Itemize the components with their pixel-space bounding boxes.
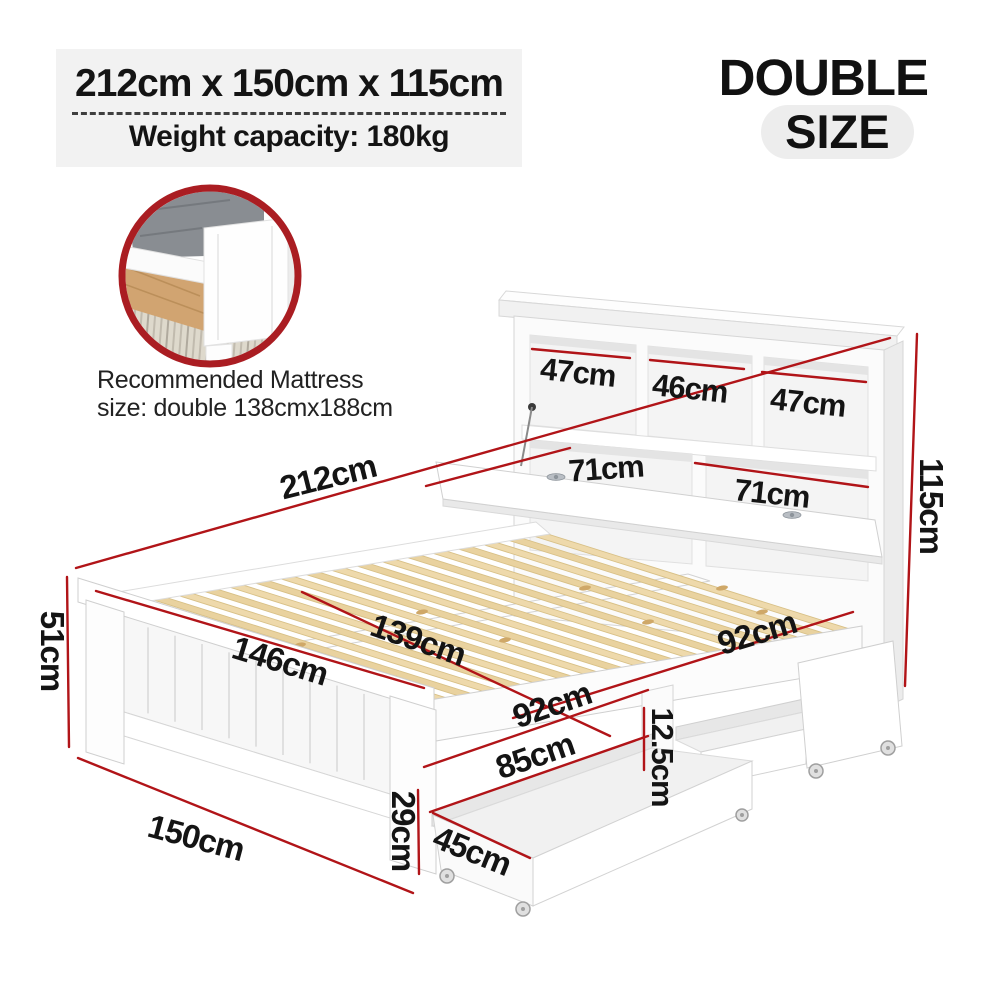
desk-hinge-left xyxy=(547,474,565,481)
inset-footboard xyxy=(204,218,288,346)
bed-diagram: 47cm 46cm 47cm 71cm 71cm 212cm 115cm 51c… xyxy=(0,0,1000,1000)
footboard-left-leg xyxy=(86,600,124,764)
label-headboard-height: 115cm xyxy=(913,458,950,554)
label-drawer-gap: 12.5cm xyxy=(645,707,680,806)
label-footboard-height: 51cm xyxy=(34,611,71,691)
label-leg-height: 29cm xyxy=(385,791,422,871)
label-bed-base-width: 150cm xyxy=(144,807,248,868)
product-dimension-infographic: 212cm x 150cm x 115cm Weight capacity: 1… xyxy=(0,0,1000,1000)
inset-photo xyxy=(120,186,307,368)
label-compartment-left: 71cm xyxy=(567,448,645,488)
